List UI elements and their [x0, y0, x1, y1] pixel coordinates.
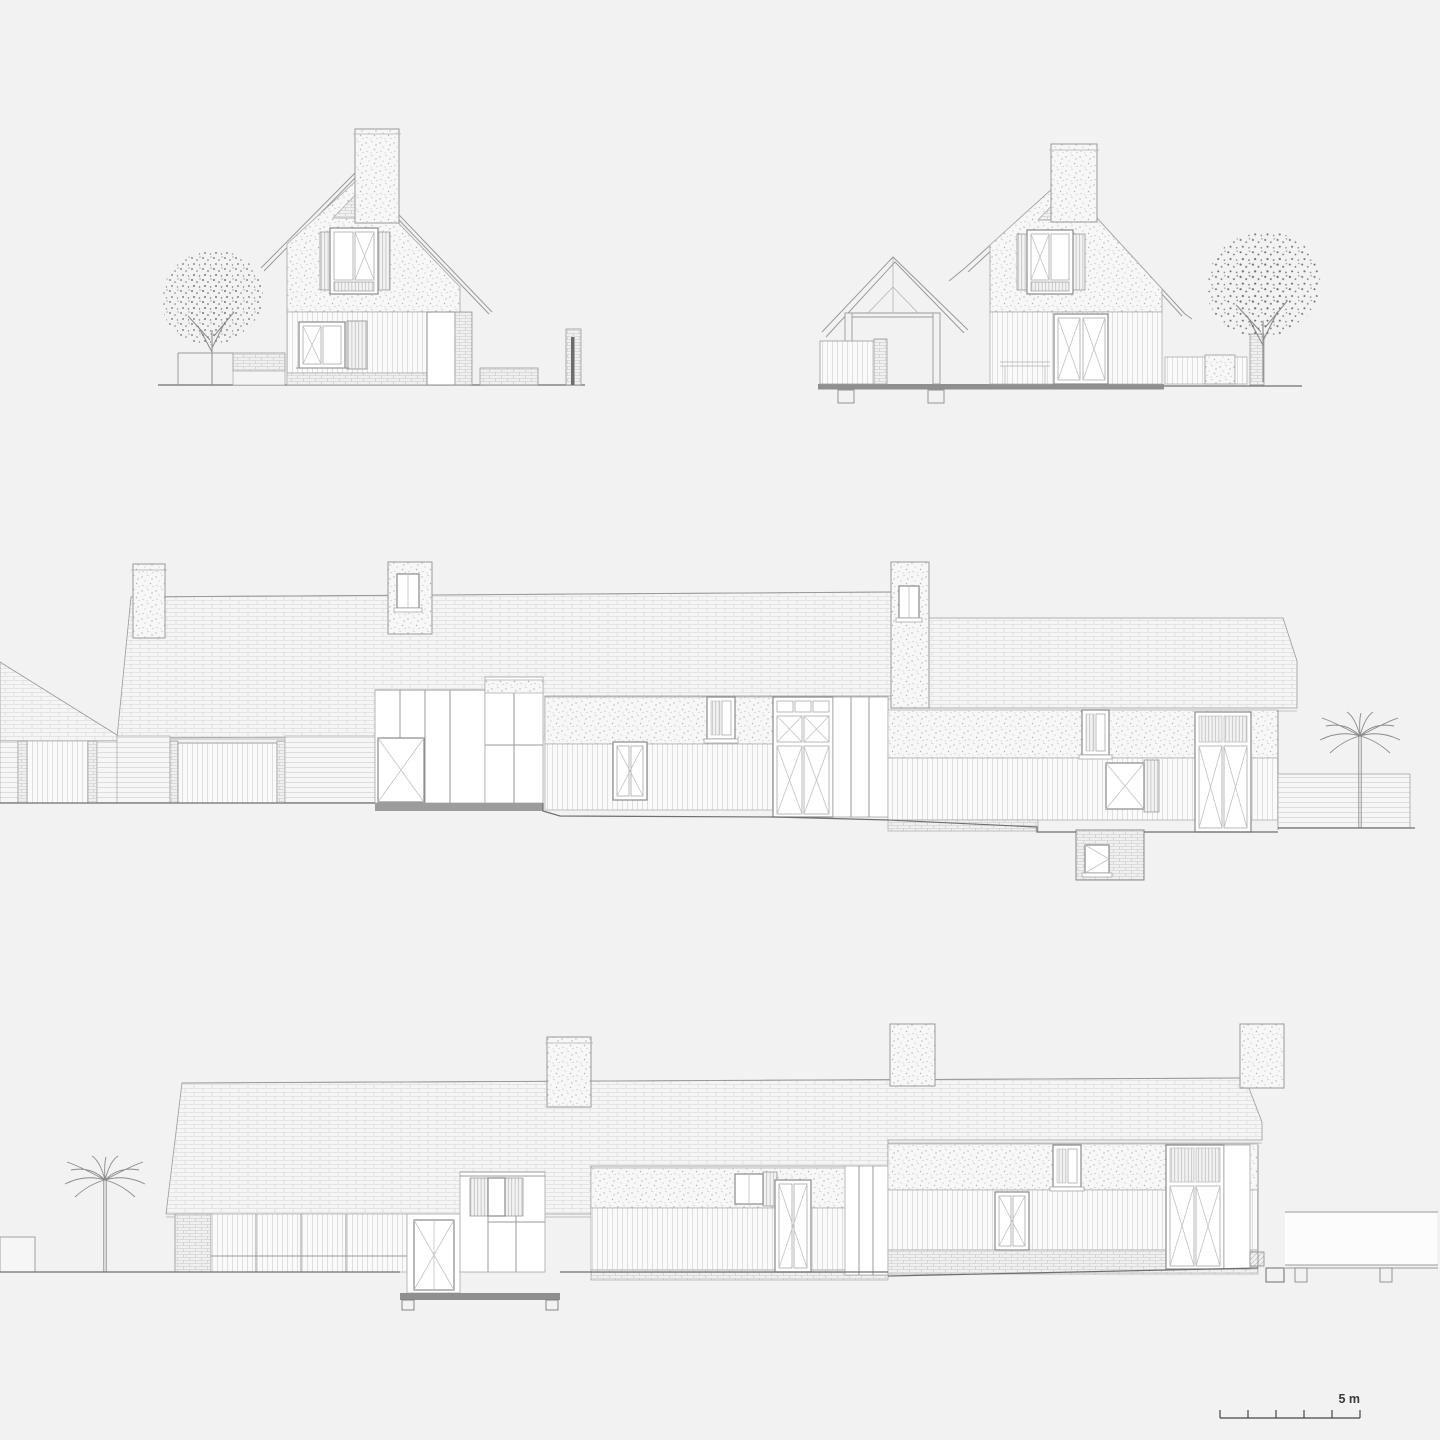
post-footing: [838, 390, 854, 403]
left-barn-facade: [117, 736, 375, 803]
right-building-facade: [888, 710, 1278, 832]
architectural-drawing-sheet: 5 m: [0, 0, 1440, 1440]
shuttered-window: [735, 1172, 777, 1206]
elevation-top-left: [158, 129, 585, 385]
tall-barn-door: [1166, 1145, 1224, 1269]
chimney: [545, 1037, 593, 1107]
scale-bar-label: 5 m: [1338, 1392, 1360, 1406]
rendered-pier: [1205, 355, 1235, 384]
chimney: [353, 129, 401, 223]
barn-doors: [1054, 314, 1108, 384]
right-building-facade: [888, 1144, 1264, 1274]
central-house-facade: [591, 1166, 888, 1280]
wing-roof: [0, 662, 117, 741]
scale-bar: 5 m: [1220, 1392, 1360, 1418]
ground-section-bar: [818, 384, 1164, 390]
low-wing: [0, 662, 118, 803]
upper-window: [488, 1178, 505, 1216]
entrance-door: [427, 312, 455, 385]
glazed-link: [375, 677, 543, 811]
lower-window: [995, 1192, 1029, 1250]
tall-barn-door: [1195, 712, 1251, 832]
elevation-middle: [0, 562, 1415, 880]
upper-window: [1017, 230, 1085, 294]
lower-window: [613, 742, 647, 800]
elevation-drawing-canvas: 5 m: [0, 0, 1440, 1440]
window-shutter: [378, 232, 390, 290]
glazed-panel: [1224, 1145, 1250, 1269]
window-shutter: [347, 321, 367, 369]
truss-rafters: [822, 257, 968, 337]
lower-window: [296, 321, 367, 369]
gable-house: [949, 144, 1192, 384]
upper-window: [320, 228, 390, 294]
deck-post-footing: [1380, 1268, 1392, 1282]
glazed-panel: [845, 1166, 888, 1275]
left-building-facade: [175, 1214, 407, 1272]
brick-pier: [874, 339, 887, 384]
glazed-panel: [833, 697, 888, 817]
roof-dormer-chimney: [388, 562, 432, 634]
chimney: [131, 564, 167, 638]
deck-post-footing: [1295, 1268, 1307, 1282]
window-balustrade: [1031, 282, 1069, 291]
garden-bench-wall: [480, 368, 538, 385]
palm-tree-icon: [65, 1156, 145, 1272]
deck-wall: [1266, 1212, 1438, 1282]
truss-king-post: [868, 257, 918, 313]
window-shutter: [1073, 234, 1085, 290]
scale-bar-ticks: [1220, 1410, 1360, 1418]
brick-pier: [175, 1214, 211, 1272]
window-shutter: [505, 1178, 523, 1216]
ground-step: [1266, 1268, 1284, 1282]
entrance-porch: [407, 1214, 460, 1293]
truss-tie-beam: [846, 313, 940, 317]
central-house-facade: [545, 697, 888, 817]
window-balustrade: [334, 282, 374, 291]
chimney: [890, 1024, 935, 1086]
timber-fence: [820, 341, 874, 384]
elevation-bottom: [0, 1024, 1438, 1310]
basement-section: [1076, 830, 1144, 880]
garden-wall: [0, 1237, 35, 1272]
planter-wall: [178, 353, 285, 385]
two-storey-glazed-bay: [460, 1172, 545, 1272]
window-shutter: [1144, 760, 1159, 812]
sliding-barn-door: [178, 743, 277, 803]
terrace-plinth: [375, 803, 543, 811]
hatched-plinth-block: [1250, 1252, 1264, 1266]
brick-plinth: [287, 373, 427, 385]
porch-post: [933, 313, 940, 384]
chimney: [1049, 144, 1099, 222]
tall-door: [775, 1180, 811, 1272]
window-shutter: [470, 1178, 488, 1216]
post-footing: [928, 390, 944, 403]
garden-fence: [1165, 334, 1264, 385]
brick-pier: [1250, 334, 1264, 385]
roof-dormer-chimney: [891, 562, 929, 708]
elevation-top-right: [818, 144, 1320, 403]
upper-window: [704, 697, 738, 743]
gate-post: [571, 337, 575, 385]
basement-window: [1085, 845, 1109, 873]
upper-window: [1079, 710, 1112, 759]
upper-window: [1050, 1145, 1084, 1191]
foundation-section: [400, 1293, 560, 1310]
chimney: [1240, 1024, 1284, 1088]
glazed-slat-screen: [211, 1214, 407, 1272]
brick-corner-pier: [455, 312, 472, 385]
right-roof: [928, 618, 1297, 708]
gable-house: [261, 129, 492, 385]
garden-wall: [1278, 774, 1410, 828]
shuttered-window: [1106, 760, 1159, 812]
timber-clad-band: [591, 1208, 888, 1270]
gate-pier: [566, 329, 581, 385]
glazed-entrance: [773, 697, 833, 817]
